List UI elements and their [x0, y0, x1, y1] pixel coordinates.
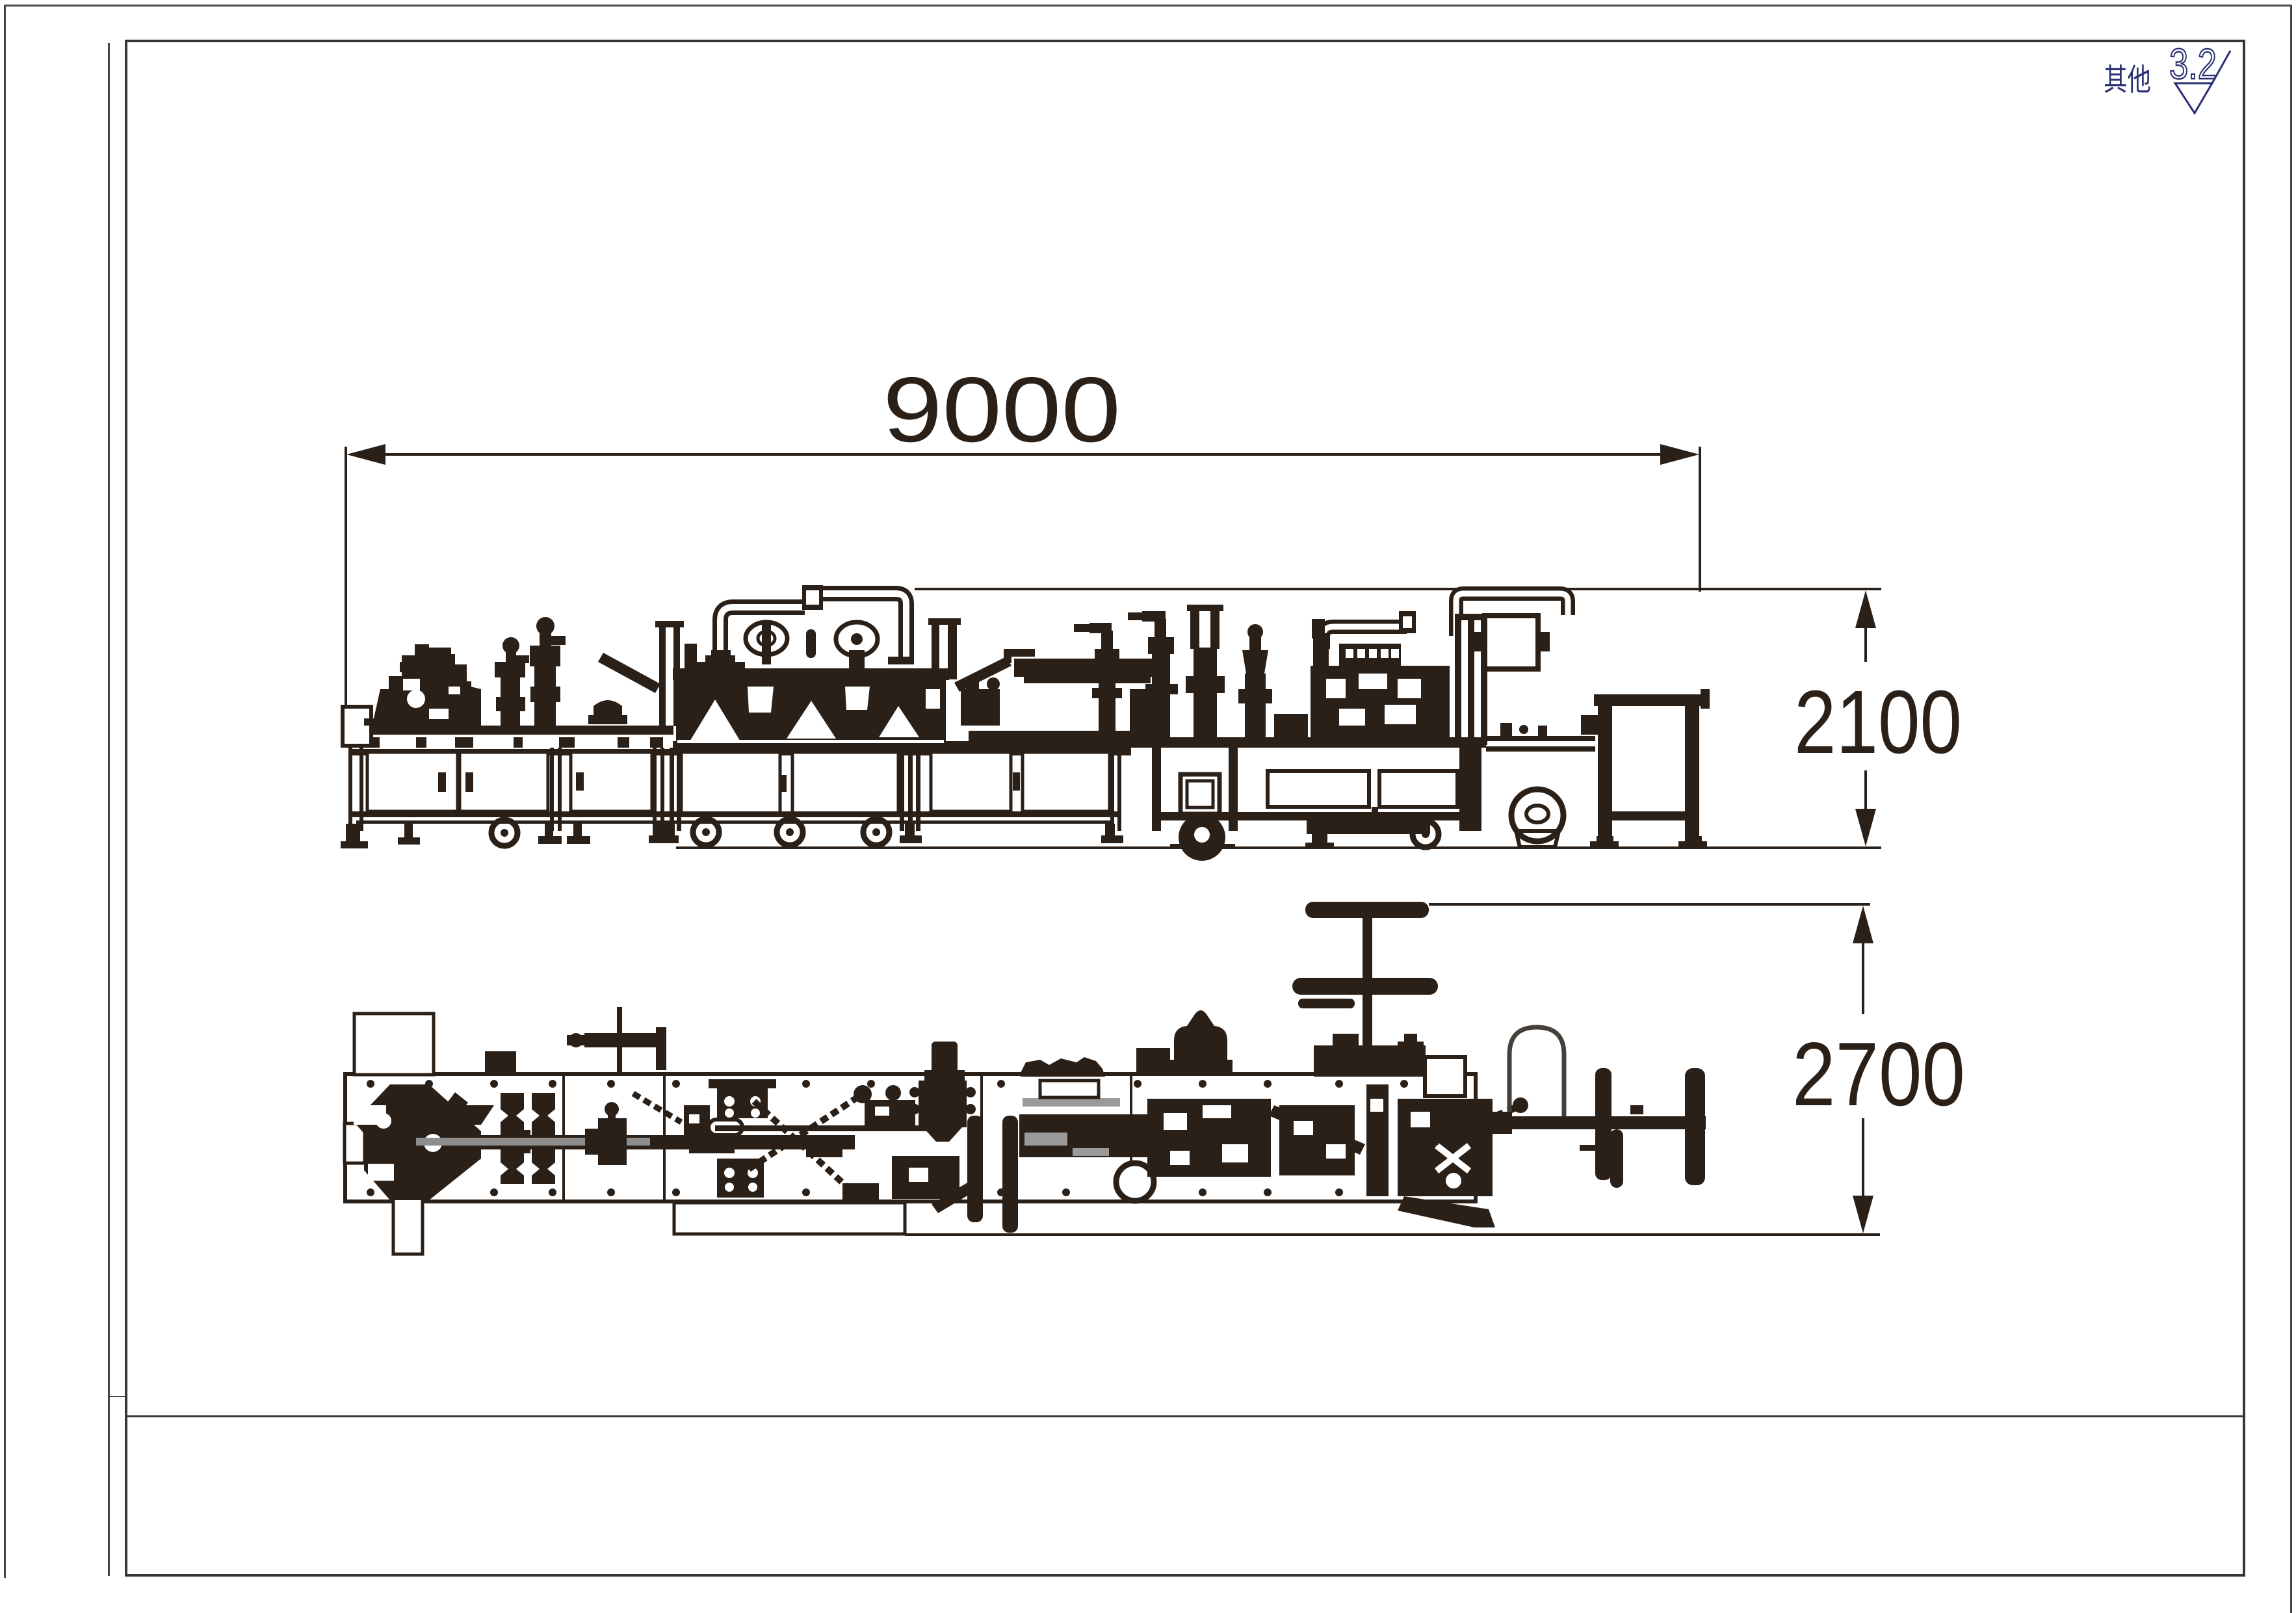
svg-text:2700: 2700 — [1792, 1024, 1965, 1125]
svg-text:其他: 其他 — [2104, 62, 2151, 97]
svg-text:3.2: 3.2 — [2169, 40, 2217, 88]
svg-text:9000: 9000 — [883, 358, 1121, 462]
svg-text:2100: 2100 — [1794, 672, 1962, 772]
